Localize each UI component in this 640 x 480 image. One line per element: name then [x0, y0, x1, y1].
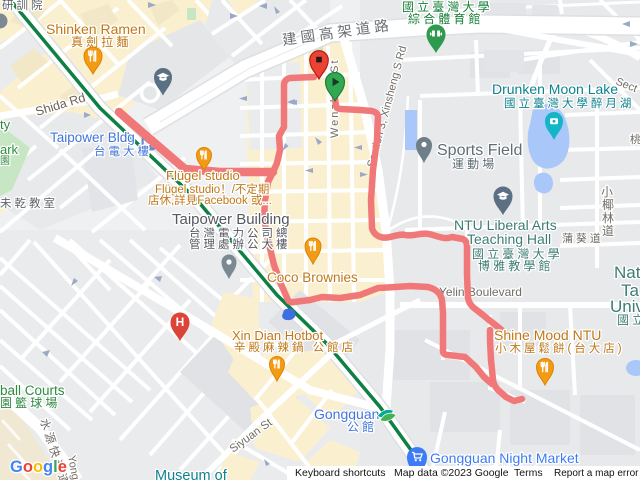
svg-text:博雅教學館: 博雅教學館 [478, 258, 554, 273]
svg-text:Nat: Nat [614, 263, 640, 282]
svg-text:桃: 桃 [630, 132, 640, 146]
svg-text:運動場: 運動場 [452, 157, 497, 171]
svg-text:台電大樓: 台電大樓 [94, 144, 152, 158]
svg-text:Xin Dian Hotbot: Xin Dian Hotbot [232, 328, 323, 343]
svg-text:ark: ark [0, 142, 19, 157]
svg-text:公館: 公館 [347, 419, 377, 434]
svg-text:H: H [176, 315, 185, 329]
svg-text:Drunken Moon Lake: Drunken Moon Lake [492, 81, 618, 97]
svg-text:園: 園 [0, 155, 13, 167]
svg-text:Terms: Terms [514, 467, 543, 479]
svg-text:Map data ©2023 Google: Map data ©2023 Google [394, 467, 509, 479]
svg-text:店休,詳見Facebook 或...: 店休,詳見Facebook 或... [148, 193, 272, 207]
svg-text:Keyboard shortcuts: Keyboard shortcuts [295, 467, 385, 479]
svg-text:Coco Brownies: Coco Brownies [267, 270, 358, 285]
svg-text:小椰林道: 小椰林道 [601, 185, 614, 238]
svg-text:研訓院: 研訓院 [2, 0, 45, 12]
svg-text:辛殿麻辣鍋 公館店: 辛殿麻辣鍋 公館店 [234, 340, 356, 354]
svg-text:Flügel studio！/不定期: Flügel studio！/不定期 [155, 182, 269, 196]
svg-text:綜合體育館: 綜合體育館 [408, 11, 484, 26]
svg-text:真劍拉麵: 真劍拉麵 [71, 34, 131, 49]
svg-text:Gongguan Night Market: Gongguan Night Market [430, 450, 579, 466]
svg-text:Teaching Hall: Teaching Hall [467, 231, 551, 247]
svg-text:Taipower Building: Taipower Building [172, 211, 290, 228]
svg-text:管理處辦公大樓: 管理處辦公大樓 [189, 237, 290, 251]
svg-text:國立臺: 國立臺 [617, 312, 640, 327]
svg-text:Google: Google [10, 458, 67, 476]
svg-text:蒲葵道: 蒲葵道 [562, 231, 604, 245]
svg-text:台灣電力公司總: 台灣電力公司總 [189, 226, 290, 240]
svg-text:Flügel studio: Flügel studio [166, 168, 240, 183]
svg-text:國立臺灣大學醉月湖: 國立臺灣大學醉月湖 [504, 96, 634, 110]
svg-text:Report a map error: Report a map error [554, 468, 639, 479]
svg-text:Taipower Bldg: Taipower Bldg [50, 130, 135, 145]
svg-text:小木屋鬆餅(台大店): 小木屋鬆餅(台大店) [495, 341, 625, 355]
svg-text:Yelin Boulevard: Yelin Boulevard [439, 285, 522, 299]
svg-text:未乾教室: 未乾教室 [0, 196, 58, 210]
svg-text:園籃球場: 園籃球場 [0, 395, 60, 410]
svg-text:ty: ty [0, 117, 11, 132]
svg-text:Shine Mood NTU: Shine Mood NTU [494, 327, 601, 343]
svg-text:Museum of: Museum of [155, 468, 228, 480]
